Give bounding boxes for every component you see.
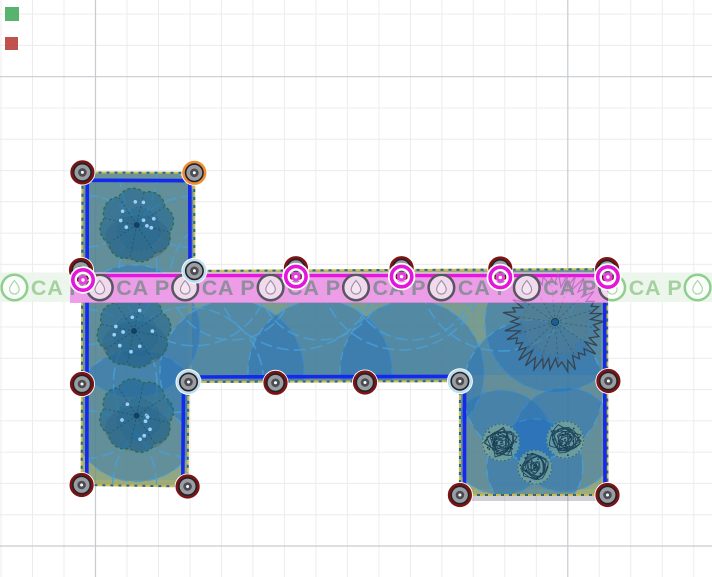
svg-text:CA P: CA P <box>629 276 683 300</box>
svg-text:CA P: CA P <box>543 276 597 300</box>
svg-text:CA P: CA P <box>202 276 256 300</box>
svg-text:CA P: CA P <box>116 276 170 300</box>
